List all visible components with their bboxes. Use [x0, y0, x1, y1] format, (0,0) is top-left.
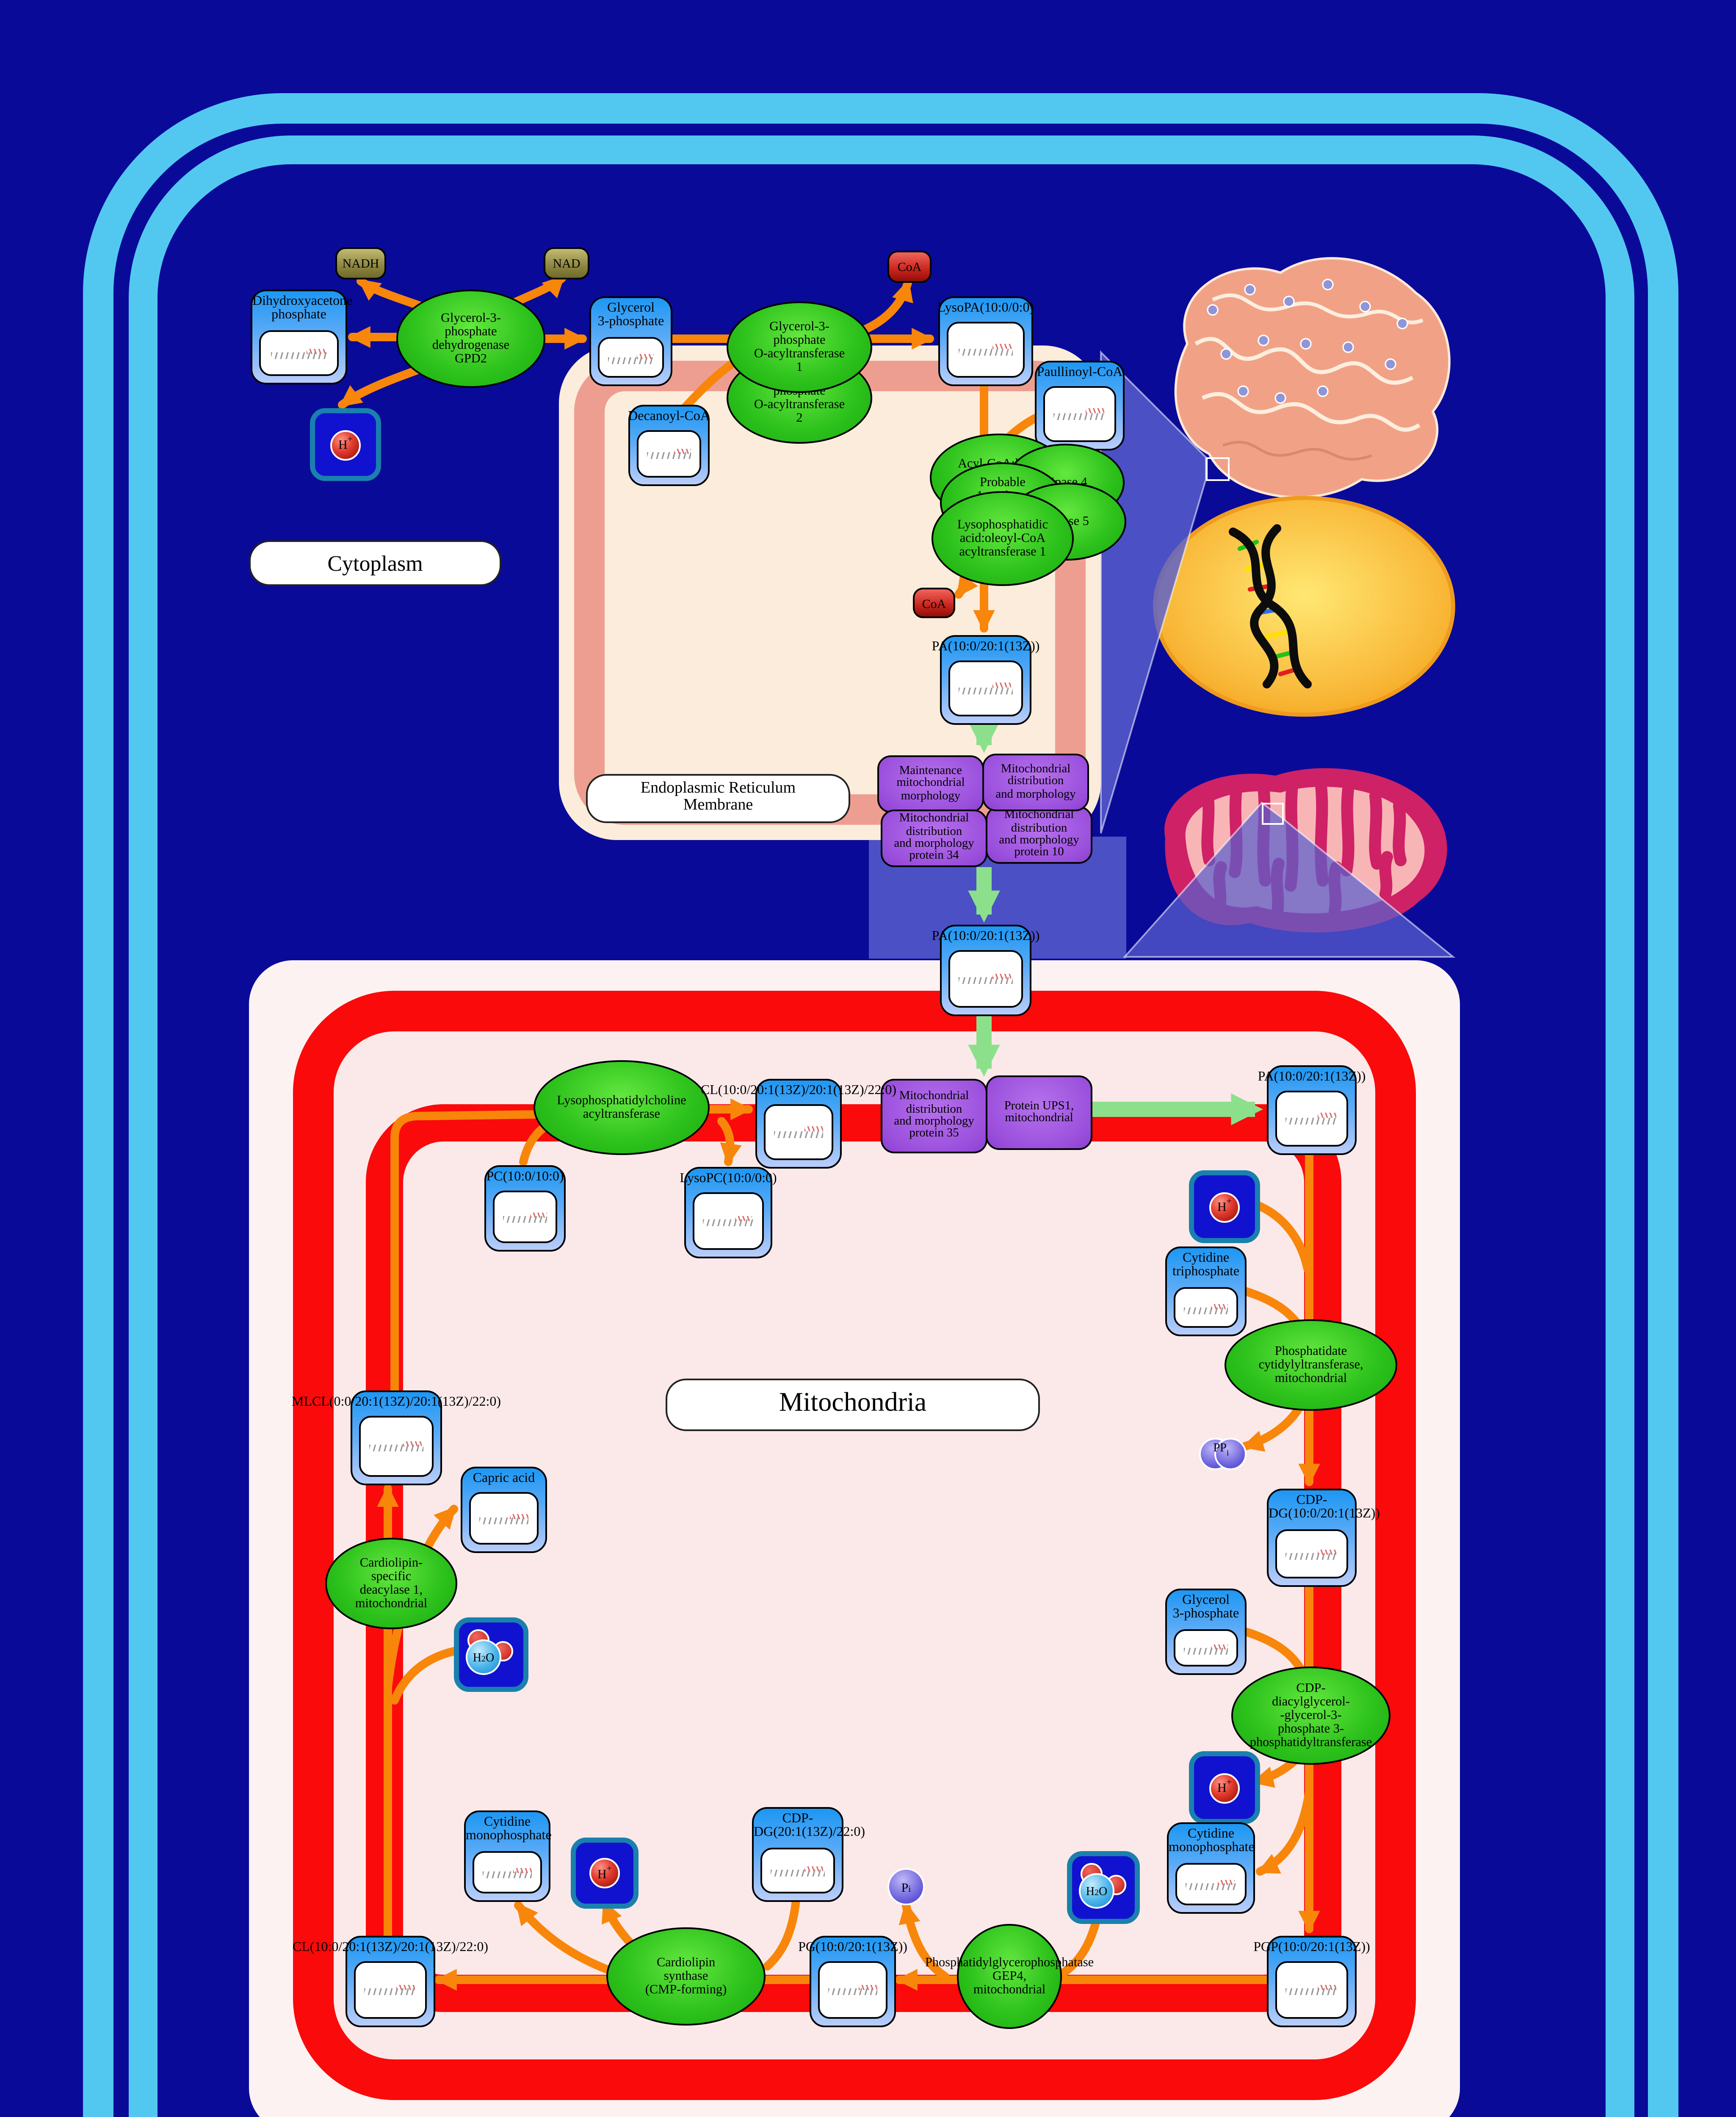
metabolite-lysopc-label: LysoPC(10:0/0:0): [680, 1169, 777, 1186]
h2o-2: 2: [481, 1656, 486, 1665]
metabolite-pgp-label: PGP(10:0/20:1(13Z)): [1253, 1937, 1370, 1955]
protein-mmm[interactable]: Maintenance mitochondrial morphology: [877, 755, 984, 813]
metabolite-capric-label: Capric acid: [462, 1468, 545, 1486]
enzyme-gpat1[interactable]: Glycerol-3- phosphate O-acyltransferase …: [727, 301, 872, 393]
protein-ups1[interactable]: Protein UPS1, mitochondrial: [986, 1075, 1092, 1150]
h2o-o: O: [486, 1650, 494, 1664]
pathway-canvas: Cytoplasm Endoplasmic Reticulum Membrane…: [0, 0, 1736, 2117]
metabolite-paullinoyl-label: Paullinoyl-CoA: [1037, 362, 1123, 380]
molecule-structure: [764, 1104, 833, 1160]
h-charge: +: [1227, 1778, 1232, 1788]
metabolite-g3p-label: Glycerol 3-phosphate: [1167, 1590, 1245, 1622]
er-label: Endoplasmic Reticulum Membrane: [586, 774, 850, 823]
metabolite-cmp-left[interactable]: Cytidine monophosphate: [464, 1810, 550, 1902]
metabolite-cdpdg-label: CDP- DG(10:0/20:1(13Z)): [1269, 1490, 1355, 1523]
metabolite-cmp-label: Cytidine monophosphate: [1169, 1824, 1253, 1856]
molecule-structure: [598, 337, 664, 378]
ion-h2o-left[interactable]: H2O: [454, 1617, 528, 1692]
enzyme-lpaat1[interactable]: Lysophosphatidic acid:oleoyl-CoA acyltra…: [932, 491, 1074, 586]
metabolite-g3p-cytoplasm[interactable]: Glycerol 3-phosphate: [589, 296, 672, 386]
cofactor-coa-2[interactable]: CoA: [913, 588, 955, 618]
er-label-text: Endoplasmic Reticulum Membrane: [641, 782, 796, 815]
enzyme-lpcat[interactable]: Lysophosphatidylcholine acyltransferase: [534, 1060, 710, 1155]
enzyme-cls-label: Cardiolipin synthase (CMP-forming): [645, 1956, 727, 1997]
molecule-structure: [359, 1416, 434, 1477]
enzyme-cdgp[interactable]: CDP- diacylglycerol- -glycerol-3- phosph…: [1231, 1667, 1390, 1765]
molecule-structure: [637, 430, 701, 478]
molecule-structure: [259, 330, 339, 376]
enzyme-cdgp-label: CDP- diacylglycerol- -glycerol-3- phosph…: [1250, 1682, 1372, 1749]
molecule-structure: [1175, 1863, 1247, 1905]
molecule-structure: [1275, 1961, 1348, 2019]
metabolite-paullinoyl-coa[interactable]: Paullinoyl-CoA: [1035, 361, 1125, 450]
enzyme-gpd2-label: Glycerol-3- phosphate dehydrogenase GPD2: [432, 312, 509, 366]
protein-ups1-label: Protein UPS1, mitochondrial: [1004, 1100, 1074, 1125]
ion-h-right-2[interactable]: H+: [1189, 1751, 1260, 1824]
metabolite-pa-ims[interactable]: PA(10:0/20:1(13Z)): [940, 925, 1031, 1016]
protein-mdm34[interactable]: Mitochondrial distribution and morpholog…: [881, 810, 987, 867]
cytoplasm-label: Cytoplasm: [249, 540, 501, 586]
metabolite-pc[interactable]: PC(10:0/10:0): [484, 1165, 566, 1252]
enzyme-gep4[interactable]: Phosphatidylglycerophosphatase GEP4, mit…: [957, 1924, 1062, 2029]
link-h2o-l: [395, 1651, 454, 1700]
h2o-h: H: [473, 1650, 481, 1664]
ion-h-cytoplasm[interactable]: H+: [310, 408, 381, 481]
metabolite-cl-label: CL(10:0/20:1(13Z)/20:1(13Z)/22:0): [701, 1081, 896, 1098]
metabolite-pg-label: PG(10:0/20:1(13Z)): [798, 1937, 907, 1955]
metabolite-cl-bottom[interactable]: CL(10:0/20:1(13Z)/20:1(13Z)/22:0): [346, 1936, 435, 2027]
pi-label: P: [901, 1879, 909, 1894]
molecule-structure: [1174, 1629, 1238, 1667]
metabolite-mlcl[interactable]: MLCL(0:0/20:1(13Z)/20:1(13Z)/22:0): [351, 1390, 442, 1485]
water-sphere: H2O: [1079, 1873, 1114, 1909]
enzyme-clsd[interactable]: Cardiolipin- specific deacylase 1, mitoc…: [325, 1538, 457, 1629]
enzyme-gpat1-label: Glycerol-3- phosphate O-acyltransferase …: [754, 320, 845, 374]
ppi-label: PPi: [1199, 1441, 1243, 1459]
metabolite-cdpdg-right[interactable]: CDP- DG(10:0/20:1(13Z)): [1267, 1489, 1357, 1587]
cofactor-coa-1[interactable]: CoA: [887, 251, 932, 283]
metabolite-pa-er[interactable]: PA(10:0/20:1(13Z)): [940, 635, 1031, 725]
molecule-structure: [493, 1191, 557, 1243]
arrow-to-lysopc: [721, 1121, 730, 1162]
ppi-text: PP: [1214, 1441, 1227, 1455]
ion-h-right-1[interactable]: H+: [1189, 1170, 1260, 1243]
metabolite-cmp-label: Cytidine monophosphate: [466, 1812, 549, 1844]
protein-mmm-label: Maintenance mitochondrial morphology: [896, 765, 965, 803]
h-sphere: H+: [330, 429, 361, 460]
arrow-to-cmp-r: [1260, 1792, 1309, 1871]
h-sphere: H+: [589, 1858, 620, 1888]
ion-h-bottom[interactable]: H+: [571, 1838, 639, 1909]
protein-mdm10[interactable]: Mitochondrial distribution and morpholog…: [986, 806, 1092, 864]
ppi-sub: i: [1227, 1451, 1229, 1459]
molecule-structure: [947, 322, 1025, 378]
h2o-o: O: [1099, 1884, 1107, 1898]
protein-mdm-label: Mitochondrial distribution and morpholog…: [995, 763, 1075, 801]
molecule-structure: [1275, 1091, 1348, 1147]
link-cdpdg-b: [767, 1900, 796, 1966]
molecule-structure: [760, 1848, 835, 1893]
metabolite-lysopa[interactable]: LysoPA(10:0/0:0): [938, 296, 1033, 386]
metabolite-ctp-label: Cytidine triphosphate: [1167, 1248, 1245, 1280]
metabolite-mlcl-label: MLCL(0:0/20:1(13Z)/20:1(13Z)/22:0): [292, 1392, 501, 1410]
molecule-structure: [1043, 386, 1116, 442]
metabolite-pgp[interactable]: PGP(10:0/20:1(13Z)): [1267, 1936, 1357, 2027]
metabolite-cl-label: CL(10:0/20:1(13Z)/20:1(13Z)/22:0): [293, 1937, 488, 1955]
h2o-2: 2: [1095, 1890, 1099, 1899]
metabolite-ctp[interactable]: Cytidine triphosphate: [1165, 1246, 1247, 1336]
metabolite-pc-label: PC(10:0/10:0): [486, 1167, 564, 1185]
ion-h2o-right[interactable]: H2O: [1067, 1851, 1140, 1924]
protein-mdm[interactable]: Mitochondrial distribution and morpholog…: [982, 754, 1089, 811]
metabolite-decanoyl-coa[interactable]: Decanoyl-CoA: [628, 405, 710, 486]
metabolite-pa-label: PA(10:0/20:1(13Z)): [1258, 1067, 1366, 1085]
molecule-structure: [1174, 1287, 1238, 1328]
enzyme-clsd-label: Cardiolipin- specific deacylase 1, mitoc…: [355, 1556, 427, 1611]
enzyme-pcyt[interactable]: Phosphatidate cytidylyltransferase, mito…: [1225, 1319, 1397, 1411]
cytoplasm-label-text: Cytoplasm: [327, 552, 423, 575]
protein-mdm35-label: Mitochondrial distribution and morpholog…: [894, 1091, 974, 1141]
molecule-structure: [948, 950, 1023, 1008]
cofactor-nadh[interactable]: NADH: [335, 247, 386, 279]
h-sphere: H+: [1209, 1191, 1240, 1222]
cofactor-nad-label: NAD: [553, 256, 581, 271]
molecule-structure: [354, 1961, 427, 2019]
enzyme-cls[interactable]: Cardiolipin synthase (CMP-forming): [606, 1927, 766, 2026]
h-label: H: [1217, 1780, 1227, 1795]
molecule-structure: [948, 661, 1023, 716]
metabolite-cmp-right[interactable]: Cytidine monophosphate: [1167, 1822, 1255, 1914]
h2o-h: H: [1086, 1884, 1095, 1898]
enzyme-lpcat-label: Lysophosphatidylcholine acyltransferase: [557, 1094, 686, 1121]
metabolite-dhap-label: Dihydroxyacetone phosphate: [252, 291, 346, 323]
metabolite-g3p-label: Glycerol 3-phosphate: [591, 298, 671, 330]
metabolite-pa-label: PA(10:0/20:1(13Z)): [932, 926, 1040, 944]
enzyme-lpaat1-label: Lysophosphatidic acid:oleoyl-CoA acyltra…: [957, 518, 1048, 559]
protein-mdm10-label: Mitochondrial distribution and morpholog…: [999, 810, 1079, 860]
metabolite-lysopa-label: LysoPA(10:0/0:0): [937, 298, 1034, 316]
cofactor-nadh-label: NADH: [343, 256, 379, 271]
link-mlcl-lpcat: [395, 1114, 535, 1390]
metabolite-pa-label: PA(10:0/20:1(13Z)): [932, 637, 1040, 655]
metabolite-lysopc[interactable]: LysoPC(10:0/0:0): [684, 1167, 772, 1258]
water-sphere: H2O: [466, 1639, 501, 1675]
metabolite-cdpdg-bottom[interactable]: CDP- DG(20:1(13Z)/22:0): [752, 1807, 843, 1902]
protein-mdm34-label: Mitochondrial distribution and morpholog…: [894, 813, 974, 864]
molecule-structure: [469, 1492, 539, 1545]
cofactor-coa-label: CoA: [922, 595, 946, 611]
metabolite-cdpdg-label: CDP- DG(20:1(13Z)/22:0): [754, 1809, 842, 1841]
enzyme-pcyt-label: Phosphatidate cytidylyltransferase, mito…: [1258, 1345, 1363, 1385]
metabolite-pg[interactable]: PG(10:0/20:1(13Z)): [810, 1936, 896, 2027]
metabolite-pa-inner[interactable]: PA(10:0/20:1(13Z)): [1267, 1065, 1357, 1155]
enzyme-gpd2[interactable]: Glycerol-3- phosphate dehydrogenase GPD2: [396, 290, 545, 388]
h-charge: +: [348, 435, 353, 445]
h-charge: +: [607, 1864, 612, 1874]
h-label: H: [1217, 1199, 1227, 1214]
molecule-structure: [818, 1961, 887, 2019]
molecule-structure: [693, 1192, 764, 1250]
mitochondria-label: Mitochondria: [666, 1379, 1040, 1431]
enzyme-gep4-label: Phosphatidylglycerophosphatase GEP4, mit…: [925, 1956, 1094, 1997]
cofactor-coa-label: CoA: [898, 259, 922, 274]
metabolite-decanoyl-label: Decanoyl-CoA: [628, 406, 710, 424]
ion-ppi[interactable]: PPi: [1199, 1433, 1243, 1473]
metabolite-capric-acid[interactable]: Capric acid: [461, 1467, 547, 1553]
h-sphere: H+: [1209, 1772, 1240, 1803]
ion-pi[interactable]: Pi: [887, 1868, 925, 1905]
cofactor-nad[interactable]: NAD: [544, 247, 589, 279]
metabolite-g3p-mito[interactable]: Glycerol 3-phosphate: [1165, 1589, 1247, 1675]
h-label: H: [338, 437, 348, 452]
molecule-structure: [473, 1851, 542, 1893]
h-label: H: [597, 1866, 607, 1881]
mitochondria-label-text: Mitochondria: [779, 1390, 926, 1419]
molecule-structure: [1275, 1529, 1348, 1578]
pi-sub: i: [908, 1885, 911, 1895]
metabolite-cl-top[interactable]: CL(10:0/20:1(13Z)/20:1(13Z)/22:0): [755, 1079, 842, 1169]
h-charge: +: [1227, 1197, 1232, 1208]
metabolite-dhap[interactable]: Dihydroxyacetone phosphate: [251, 290, 347, 384]
